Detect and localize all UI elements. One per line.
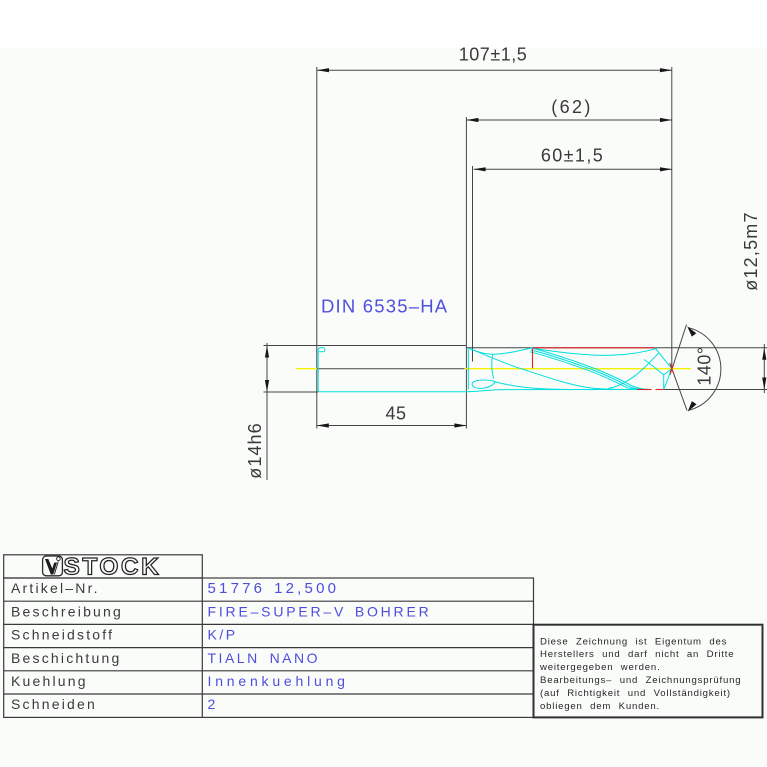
svg-text:Beschreibung: Beschreibung — [11, 603, 123, 619]
svg-text:Innenkuehlung: Innenkuehlung — [208, 673, 349, 689]
svg-text:45: 45 — [385, 404, 406, 424]
svg-text:Kuehlung: Kuehlung — [11, 673, 88, 689]
svg-text:K/P: K/P — [208, 627, 238, 643]
svg-text:Beschichtung: Beschichtung — [11, 650, 121, 666]
svg-text:weitergegeben werden.: weitergegeben werden. — [539, 662, 661, 673]
svg-text:FIRE–SUPER–V BOHRER: FIRE–SUPER–V BOHRER — [208, 603, 432, 619]
svg-text:51776 12,500: 51776 12,500 — [208, 580, 340, 597]
svg-text:DIN 6535–HA: DIN 6535–HA — [321, 296, 448, 317]
svg-text:ø14h6: ø14h6 — [245, 422, 265, 479]
svg-text:ø12,5m7: ø12,5m7 — [741, 211, 761, 290]
svg-text:60±1,5: 60±1,5 — [541, 146, 604, 166]
svg-text:Herstellers und darf nicht an: Herstellers und darf nicht an Dritte — [540, 649, 734, 660]
svg-text:Schneiden: Schneiden — [11, 696, 97, 712]
svg-text:107±1,5: 107±1,5 — [459, 45, 527, 65]
svg-text:(auf Richtigkeit und Vollständ: (auf Richtigkeit und Vollständigkeit) — [540, 688, 731, 699]
svg-text:Artikel–Nr.: Artikel–Nr. — [11, 580, 100, 596]
svg-text:Schneidstoff: Schneidstoff — [11, 627, 114, 643]
svg-text:140°: 140° — [695, 346, 715, 385]
svg-text:STOCK: STOCK — [64, 554, 162, 581]
svg-text:2: 2 — [208, 696, 218, 712]
svg-text:(62): (62) — [551, 97, 593, 117]
svg-text:obliegen dem Kunden.: obliegen dem Kunden. — [540, 701, 660, 712]
svg-text:Bearbeitungs– und Zeichnungspr: Bearbeitungs– und Zeichnungsprüfung — [540, 675, 741, 686]
svg-text:TIALN NANO: TIALN NANO — [208, 650, 321, 666]
svg-text:Diese Zeichnung ist Eigentum d: Diese Zeichnung ist Eigentum des — [540, 636, 727, 647]
